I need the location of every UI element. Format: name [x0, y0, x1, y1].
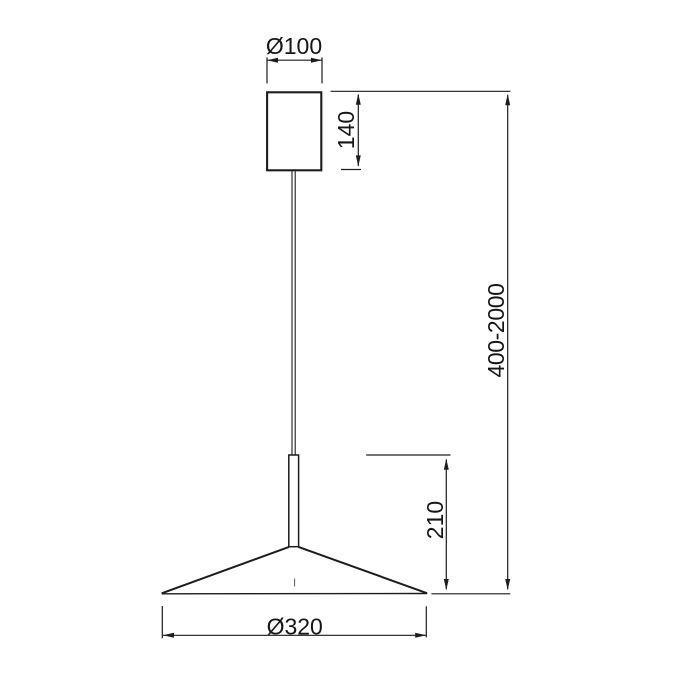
- svg-text:400-2000: 400-2000: [483, 284, 509, 378]
- svg-text:210: 210: [422, 501, 448, 539]
- svg-text:Ø320: Ø320: [267, 613, 323, 639]
- svg-text:140: 140: [333, 111, 359, 149]
- svg-text:Ø100: Ø100: [266, 33, 322, 59]
